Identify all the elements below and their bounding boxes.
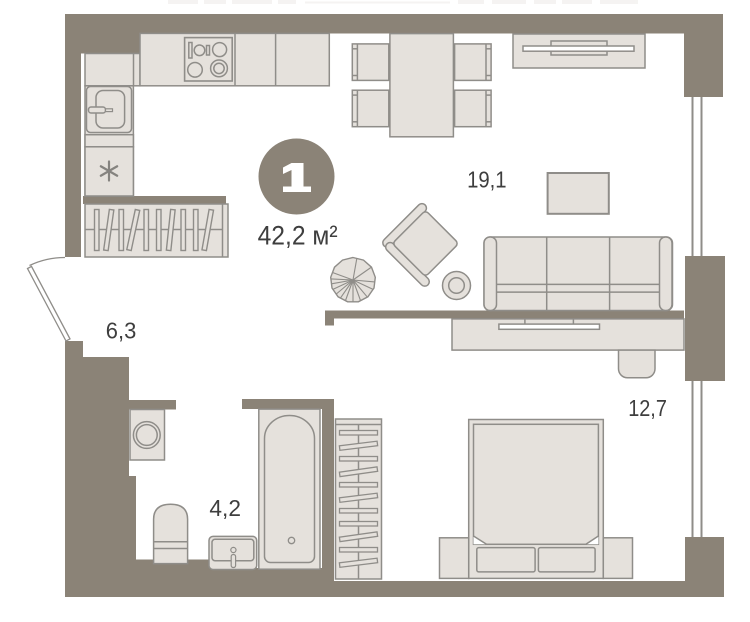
svg-text:4,2: 4,2 xyxy=(209,495,241,521)
svg-text:19,1: 19,1 xyxy=(467,166,507,192)
svg-text:6,3: 6,3 xyxy=(106,317,137,343)
svg-text:12,7: 12,7 xyxy=(628,395,667,421)
svg-text:42,2 м²: 42,2 м² xyxy=(258,221,338,251)
